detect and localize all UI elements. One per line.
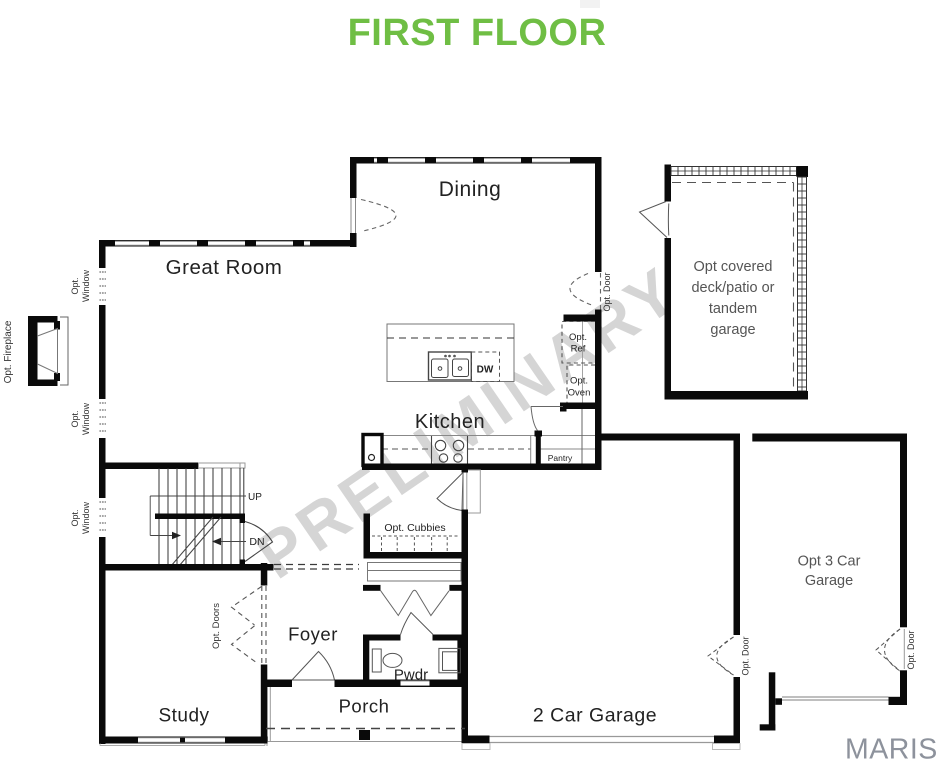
svg-text:UP: UP	[248, 492, 262, 503]
svg-text:DN: DN	[249, 536, 264, 548]
svg-text:Pantry: Pantry	[548, 453, 573, 463]
svg-text:Opt. Fireplace: Opt. Fireplace	[3, 320, 14, 383]
svg-text:DW: DW	[477, 365, 494, 376]
svg-text:Foyer: Foyer	[288, 624, 338, 645]
svg-text:Opt covered: Opt covered	[694, 259, 773, 275]
svg-text:Pwdr: Pwdr	[394, 667, 428, 684]
svg-text:Study: Study	[158, 706, 209, 727]
svg-text:Dining: Dining	[439, 178, 502, 201]
svg-text:Oven: Oven	[568, 388, 591, 399]
svg-text:FIRST FLOOR: FIRST FLOOR	[348, 12, 607, 54]
svg-text:garage: garage	[710, 322, 755, 338]
svg-text:Window: Window	[81, 501, 91, 534]
svg-text:Opt.: Opt.	[70, 277, 80, 294]
svg-text:2 Car Garage: 2 Car Garage	[533, 705, 657, 727]
svg-text:Garage: Garage	[805, 573, 853, 589]
svg-text:Opt. Doors: Opt. Doors	[211, 603, 222, 649]
svg-text:Ref: Ref	[571, 344, 586, 355]
svg-text:Porch: Porch	[339, 696, 390, 717]
svg-text:Opt.: Opt.	[70, 509, 80, 526]
svg-text:Opt. Door: Opt. Door	[741, 636, 751, 675]
svg-text:deck/patio or: deck/patio or	[691, 280, 774, 296]
svg-text:Kitchen: Kitchen	[415, 411, 485, 433]
svg-text:Opt. Door: Opt. Door	[906, 630, 916, 669]
svg-text:Opt.: Opt.	[70, 410, 80, 427]
svg-text:tandem: tandem	[709, 301, 757, 317]
svg-text:Opt. Door: Opt. Door	[602, 272, 612, 311]
svg-text:Opt.: Opt.	[569, 332, 587, 343]
svg-text:Window: Window	[81, 402, 91, 435]
svg-text:Window: Window	[81, 269, 91, 302]
svg-text:MARIS: MARIS	[845, 734, 938, 766]
svg-text:Great Room: Great Room	[166, 256, 283, 279]
svg-text:Opt.: Opt.	[570, 376, 588, 387]
svg-text:Opt. Cubbies: Opt. Cubbies	[384, 522, 445, 534]
svg-text:Opt 3 Car: Opt 3 Car	[798, 554, 861, 570]
